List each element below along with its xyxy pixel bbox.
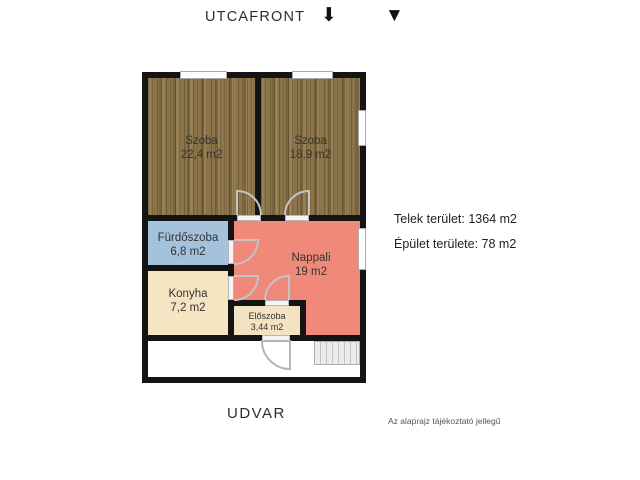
- doorway-szoba1: [237, 215, 261, 221]
- room-area: 3,44 m2: [234, 322, 300, 333]
- room-name: Előszoba: [234, 311, 300, 322]
- room-label-nappali: Nappali 19 m2: [251, 251, 371, 279]
- doorway-konyha: [228, 276, 234, 300]
- staircase: [314, 341, 360, 365]
- window-szoba1-top: [180, 71, 227, 79]
- down-arrow-icon: ⬇: [321, 4, 337, 27]
- doorway-szoba2: [285, 215, 309, 221]
- room-area: 6,8 m2: [148, 245, 228, 259]
- wall-eloszoba-right: [300, 300, 306, 341]
- room-area: 18,9 m2: [261, 148, 360, 162]
- window-szoba2-top: [292, 71, 333, 79]
- north-triangle-icon: ▼: [385, 5, 404, 27]
- plot-area-text: Telek terület: 1364 m2: [394, 212, 517, 226]
- room-label-eloszoba: Előszoba 3,44 m2: [234, 311, 300, 333]
- room-area: 19 m2: [251, 265, 371, 279]
- building-area-text: Épület területe: 78 m2: [394, 237, 516, 251]
- room-area: 22,4 m2: [148, 148, 255, 162]
- room-label-szoba-2: Szoba 18,9 m2: [261, 134, 360, 162]
- room-name: Nappali: [251, 251, 371, 265]
- room-name: Fürdőszoba: [148, 231, 228, 245]
- wall-bath-kitchen: [142, 265, 234, 271]
- floor-plan-page: UTCAFRONT ⬇ ▼ Szoba 22,4 m2: [0, 0, 640, 480]
- disclaimer-text: Az alaprajz tájékoztató jellegű: [388, 416, 500, 426]
- doorway-furdoszoba: [228, 240, 234, 264]
- room-name: Konyha: [148, 287, 228, 301]
- doorway-eloszoba: [265, 300, 289, 306]
- room-label-szoba-1: Szoba 22,4 m2: [148, 134, 255, 162]
- room-name: Szoba: [261, 134, 360, 148]
- room-area: 7,2 m2: [148, 301, 228, 315]
- street-front-label: UTCAFRONT: [205, 9, 305, 25]
- room-label-konyha: Konyha 7,2 m2: [148, 287, 228, 315]
- room-name: Szoba: [148, 134, 255, 148]
- room-label-furdoszoba: Fürdőszoba 6,8 m2: [148, 231, 228, 259]
- yard-label: UDVAR: [227, 405, 286, 422]
